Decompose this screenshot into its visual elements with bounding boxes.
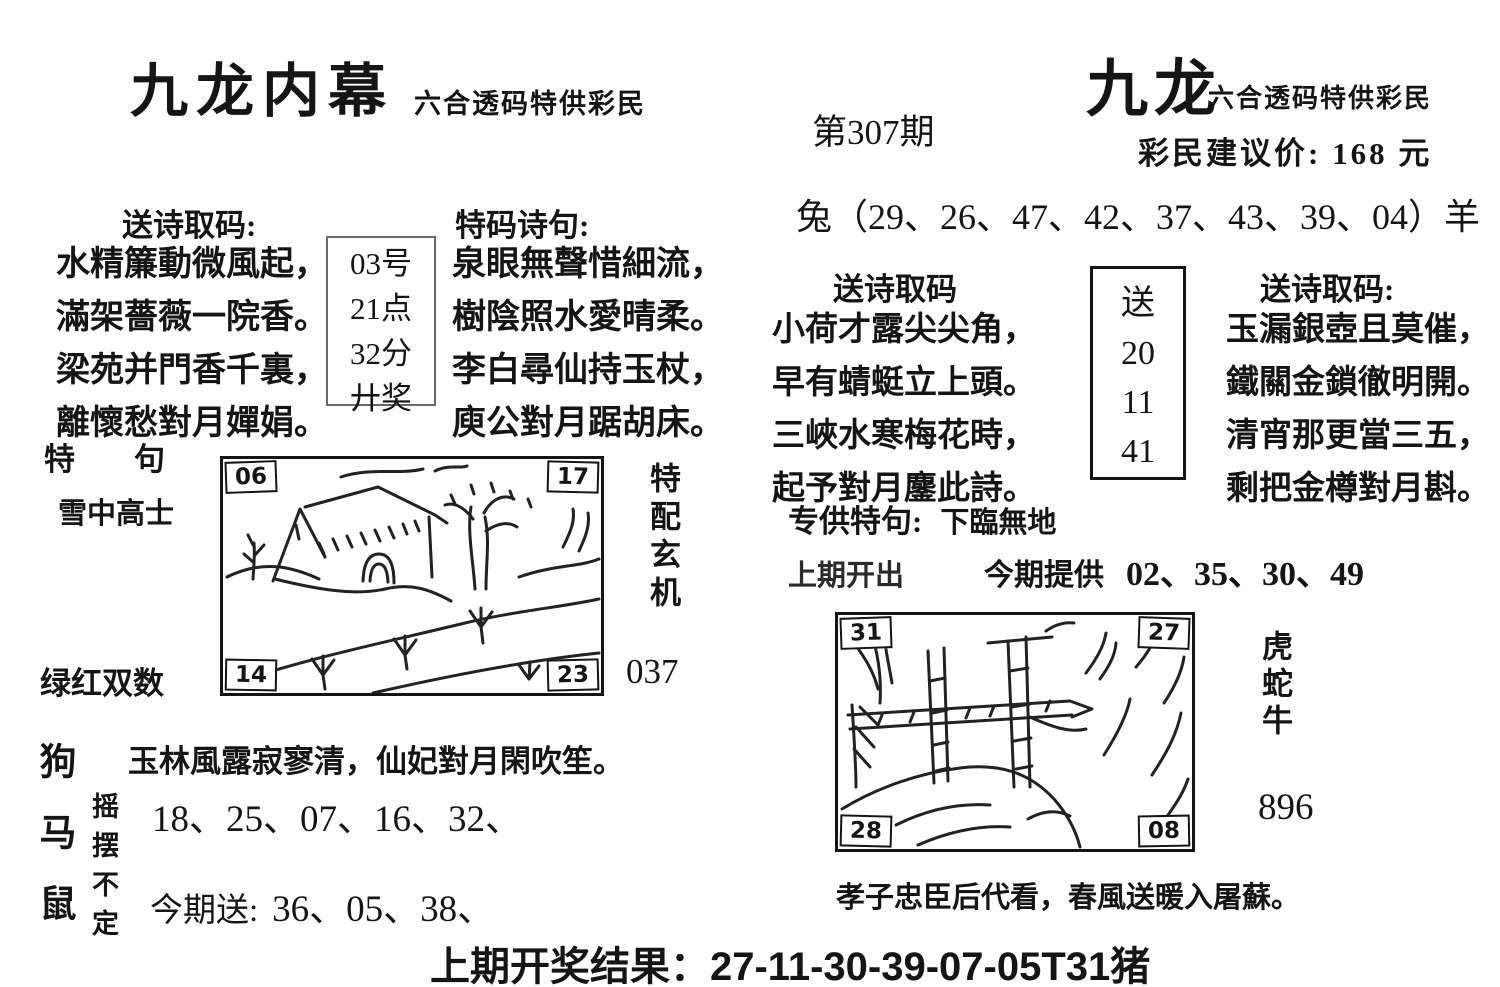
time-code-box: 03号 21点 32分 廾奖 xyxy=(326,236,436,406)
gift-numbers: 36、05、38、 xyxy=(272,889,494,930)
corner-number-tag: 23 xyxy=(547,658,600,691)
left-masthead-title: 九龙内幕 xyxy=(130,44,394,128)
send-number: 20 xyxy=(1121,335,1155,373)
time-code-minute: 21点 xyxy=(350,283,412,328)
zodiac-column-dog-horse-rat: 狗马鼠 xyxy=(26,742,80,955)
corner-number-tag: 14 xyxy=(225,659,278,692)
left-sketch-landscape-hut xyxy=(223,459,601,693)
prev-issue-label: 上期开出 xyxy=(788,560,904,592)
corner-number-tag: 31 xyxy=(839,616,892,650)
special-phrase-label: 专供特句: xyxy=(788,504,922,539)
corner-number-tag: 27 xyxy=(1137,616,1190,650)
right-picture-code: 896 xyxy=(1258,786,1314,829)
time-code-second: 32分 xyxy=(350,328,412,373)
send-label: 送 xyxy=(1121,275,1155,324)
gift-label: 今期送: xyxy=(150,893,258,929)
corner-number-tag: 08 xyxy=(1138,815,1191,848)
poem-line: 玉漏銀壺且莫催， xyxy=(1226,304,1490,357)
poem-line: 剩把金樽對月斟。 xyxy=(1226,463,1490,516)
special-phrase-row: 专供特句: 下臨無地 xyxy=(788,496,1056,541)
previous-draw-result-line: 上期开奖结果：27-11-30-39-07-05T31猪 xyxy=(430,934,1150,987)
lottery-leaflet-page: 九龙内幕 六合透码特供彩民 第307期 九龙 六合透码特供彩民 彩民建议价: 1… xyxy=(0,0,1500,987)
sway-undecided-vertical: 摇摆不定 xyxy=(84,792,123,948)
gift-numbers-row: 今期送: 36、05、38、 xyxy=(150,878,494,932)
provide-numbers: 02、35、30、49 xyxy=(1126,556,1364,593)
time-code-draw: 廾奖 xyxy=(350,373,412,418)
poem-line: 小荷才露尖尖角， xyxy=(772,304,1036,357)
provide-row: 上期开出 今期提供 02、35、30、49 xyxy=(788,546,1364,595)
poem-line: 早有蜻蜓立上頭。 xyxy=(772,357,1036,410)
mid-poem: 小荷才露尖尖角， 早有蜻蜓立上頭。 三峽水寒梅花時， 起予對月鏖此詩。 xyxy=(772,304,1036,516)
poem-line: 三峽水寒梅花時， xyxy=(772,410,1036,463)
issue-number: 第307期 xyxy=(812,104,935,155)
right-poem-heading: 送诗取码: xyxy=(1260,264,1394,309)
right-sketch-fence-hill xyxy=(838,615,1192,849)
right-picture-frame: 31 27 28 08 xyxy=(835,612,1195,852)
poem-line: 滿架薔薇一院香。 xyxy=(56,291,328,344)
green-red-even-label: 绿红双数 xyxy=(40,658,164,703)
poem-line: 水精簾動微風起， xyxy=(56,238,328,291)
now-issue-label: 今期提供 xyxy=(984,559,1104,592)
tema-poem: 泉眼無聲惜細流， 樹陰照水愛晴柔。 李白尋仙持玉杖， 庾公對月踞胡床。 xyxy=(452,238,724,450)
right-masthead-title: 九龙 xyxy=(1086,38,1222,128)
send-number: 11 xyxy=(1122,384,1155,422)
left-poem: 水精簾動微風起， 滿架薔薇一院香。 梁苑并門香千裏， 離懷愁對月嬋娟。 xyxy=(56,238,328,450)
poem-line: 梁苑并門香千裏， xyxy=(56,344,328,397)
corner-number-tag: 28 xyxy=(840,814,893,847)
zodiac-numbers-line: 兔（29、26、47、42、37、43、39、04）羊 xyxy=(796,188,1480,240)
poem-line: 泉眼無聲惜細流， xyxy=(452,238,724,291)
special-sentence-label: 特 句 xyxy=(44,434,179,479)
corner-number-tag: 17 xyxy=(547,460,600,493)
special-phrase-value: 下臨無地 xyxy=(940,507,1056,539)
poem-line: 李白尋仙持玉杖， xyxy=(452,344,724,397)
right-picture-caption: 孝子忠臣后代看，春風送暖入屠蘇。 xyxy=(836,874,1300,916)
right-poem: 玉漏銀壺且莫催， 鐵關金鎖徹明開。 清宵那更當三五， 剩把金樽對月斟。 xyxy=(1226,304,1490,516)
bottom-numbers-line: 18、25、07、16、32、 xyxy=(152,788,522,842)
send-number: 41 xyxy=(1121,433,1155,471)
send-numbers-box: 送 20 11 41 xyxy=(1090,266,1186,480)
bottom-poem-line: 玉林風露寂寥清，仙妃對月閑吹笙。 xyxy=(128,736,624,781)
poem-line: 清宵那更當三五， xyxy=(1226,410,1490,463)
poem-line: 庾公對月踞胡床。 xyxy=(452,397,724,450)
mid-poem-heading: 送诗取码 xyxy=(833,264,957,309)
left-picture-frame: 06 17 14 23 xyxy=(220,456,604,696)
price-line: 彩民建议价: 168 元 xyxy=(1138,128,1432,173)
left-masthead-subtitle: 六合透码特供彩民 xyxy=(414,82,646,121)
corner-number-tag: 06 xyxy=(224,460,277,494)
right-masthead-subtitle: 六合透码特供彩民 xyxy=(1208,78,1432,115)
special-match-mystery-vertical: 特配玄机 xyxy=(640,462,685,614)
left-picture-code: 037 xyxy=(626,652,679,692)
time-code-hour: 03号 xyxy=(350,238,412,283)
special-sentence-value: 雪中高士 xyxy=(58,490,174,532)
zodiac-column-tiger-snake-ox: 虎蛇牛 xyxy=(1252,630,1297,741)
poem-line: 鐵關金鎖徹明開。 xyxy=(1226,357,1490,410)
poem-line: 樹陰照水愛晴柔。 xyxy=(452,291,724,344)
